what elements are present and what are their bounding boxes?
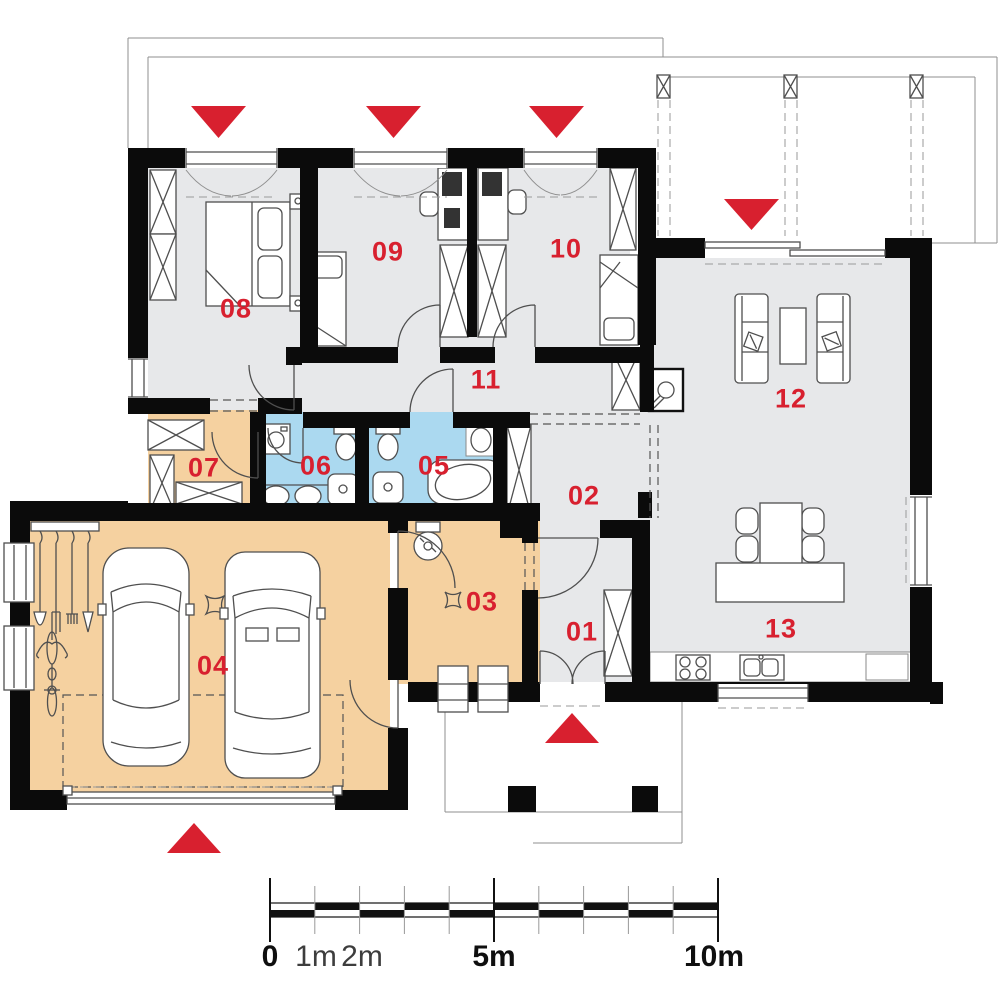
kitchen-island [716,563,844,602]
single-bed-icon [600,255,638,345]
entrance-door-gap [540,682,605,706]
room-label-01: 01 [566,617,598,648]
shower-icon [373,472,403,503]
sofa-icon [735,294,768,383]
porch-columns [508,786,658,812]
entrance-arrow-icon [167,823,221,853]
room-label-04: 04 [197,651,229,682]
window [4,543,34,602]
room-label-13: 13 [765,614,797,645]
entrance-arrow-icon [529,106,584,138]
scale-label-0: 0 [262,940,279,974]
room-label-05: 05 [418,451,450,482]
kitchen-sink-icon [740,655,784,680]
scale-label-5m: 5m [472,940,515,974]
entrance-arrow-icon [366,106,421,138]
window [718,684,808,708]
room-label-12: 12 [775,384,807,415]
room-label-03: 03 [466,587,498,618]
floor-plan-canvas: 01 02 03 04 05 06 07 08 09 10 11 12 13 0… [0,0,1000,1000]
sofa-icon [817,294,850,383]
room-label-08: 08 [220,294,252,325]
car-icon [220,552,325,778]
entrance-arrow-icon [191,106,246,138]
coffee-table-icon [780,308,806,364]
window [4,626,34,690]
shower-icon [328,474,358,505]
stove-icon [676,655,710,680]
sink-icon [466,424,496,456]
scale-label-10m: 10m [684,940,744,974]
floor-plan-drawing [0,0,1000,1000]
kitchen-counter [650,652,912,682]
entrance-arrow-icon [545,713,599,743]
scale-label-1m: 1m [295,940,337,974]
room-label-11: 11 [471,365,502,396]
room-label-10: 10 [550,234,582,265]
entrance-arrow-icon [724,199,779,230]
window [128,358,148,398]
kitchen-cabinet [866,654,908,680]
room-label-02: 02 [568,481,600,512]
scale-label-2m: 2m [341,940,383,974]
room-label-07: 07 [188,453,220,484]
room-label-06: 06 [300,451,332,482]
car-icon [98,548,194,766]
fireplace-icon [649,369,683,411]
scale-bar [270,878,718,942]
terrace-columns [657,75,923,236]
boiler-icon [414,522,442,560]
room-label-09: 09 [372,237,404,268]
